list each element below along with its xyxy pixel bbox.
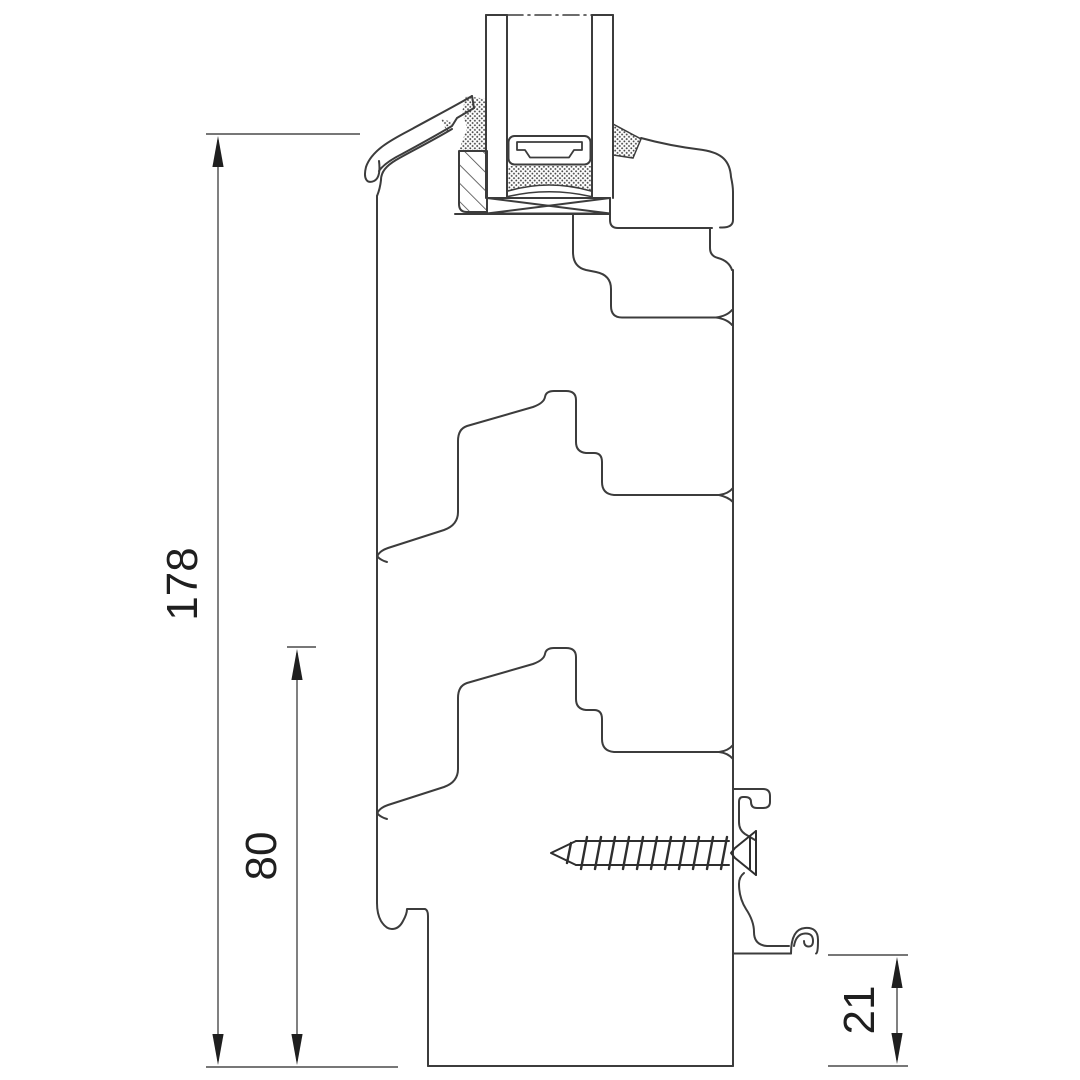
technical-drawing-canvas: 178 80 21 (0, 0, 1080, 1080)
background (0, 0, 1080, 1080)
glazing-bead-wood-section (459, 151, 487, 212)
window-section-drawing: 178 80 21 (0, 0, 1080, 1080)
dim-label-178: 178 (158, 547, 207, 620)
dim-label-21: 21 (835, 986, 884, 1035)
dim-label-80: 80 (237, 832, 286, 881)
